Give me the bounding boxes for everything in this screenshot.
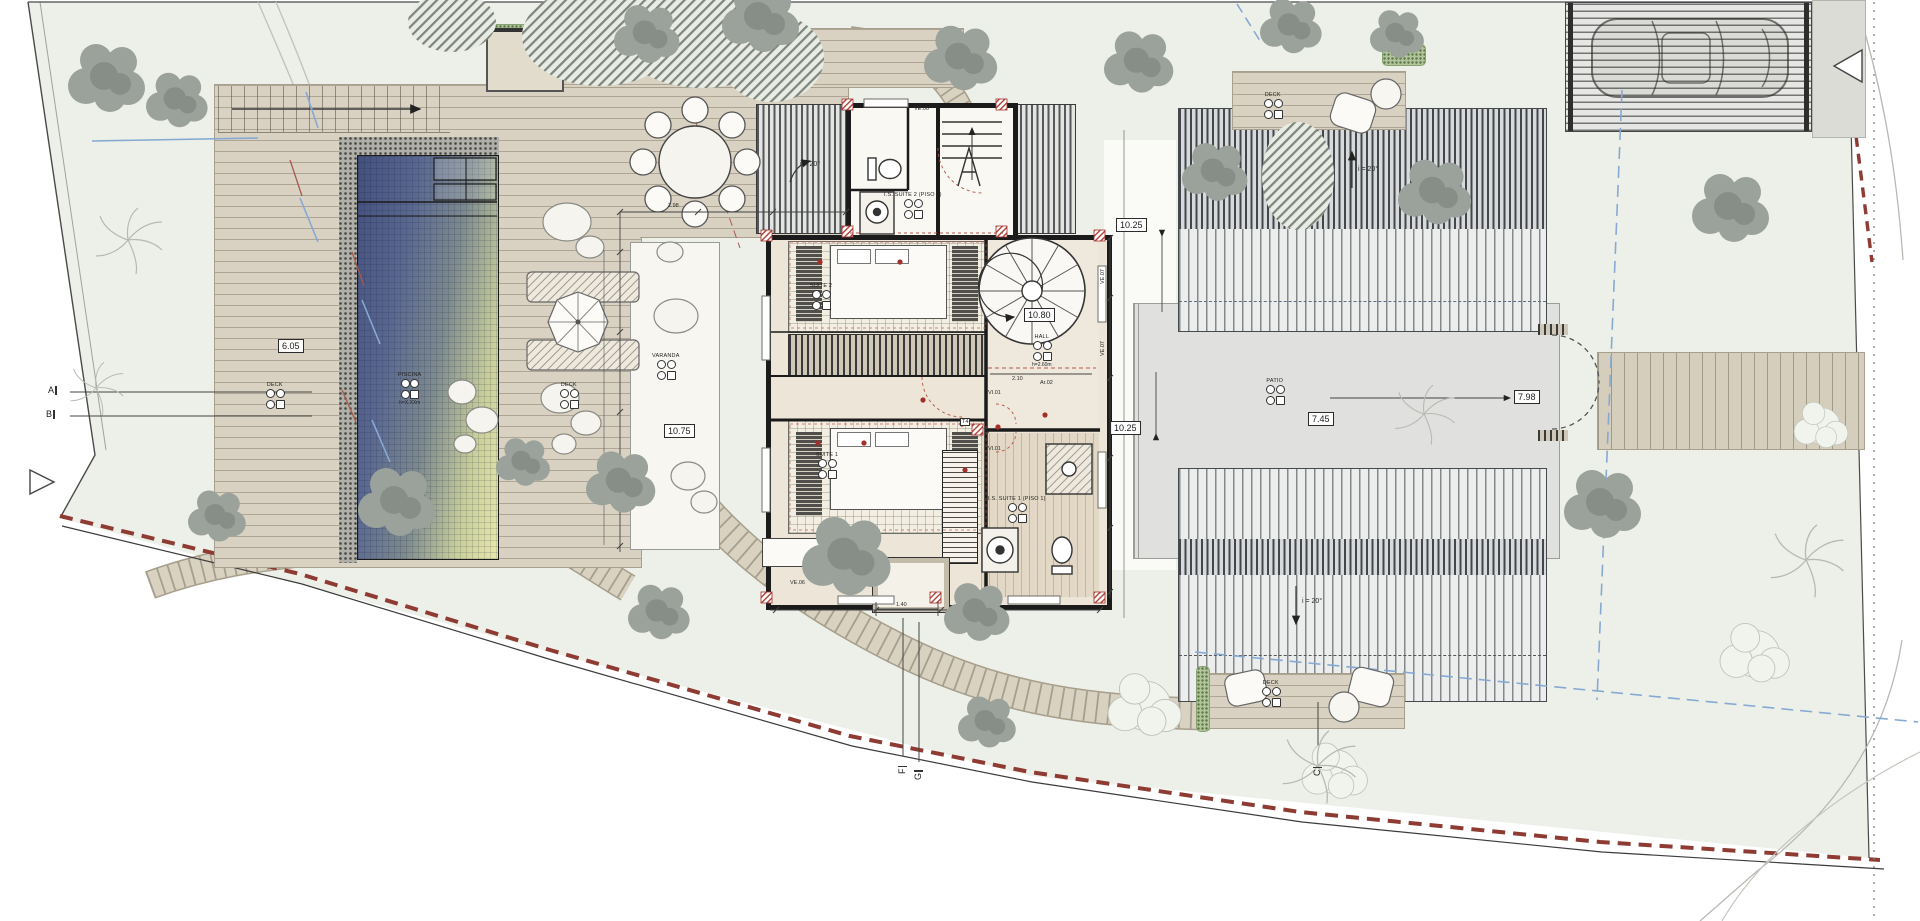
pillow [837,249,871,264]
finish-symbols [1266,385,1284,405]
suite1-label: SUITE 1 [816,452,838,458]
pillow [875,432,909,447]
hedge-top-right [1382,44,1426,66]
window-tag-ve06-b: VE.06 [790,580,805,586]
is-suite2-label: I.S. SUITE 2 (PISO 1) [884,192,942,198]
section-marker-g: G [913,770,923,780]
gate-post-bottom [1538,430,1568,441]
closet-hangers [942,450,978,564]
planting-strip [1196,666,1210,732]
suite2-wardrobe-right [952,246,978,322]
marker-letter: B [46,409,52,419]
house-top-wing [846,103,1018,247]
piscina-label: PISCINA [398,372,421,378]
suite1-bed [830,428,947,510]
section-marker-b: B [46,409,55,419]
deck-bottom-label-cluster: DECK [1262,680,1280,707]
gate-post-top [1538,324,1568,335]
piscina-depth: h=X.XXm [399,400,420,406]
door-tag-vi01-b: VI.01 [988,446,1001,452]
roof-eave-dashed [1179,655,1546,656]
varanda-label: VARANDA [652,353,680,359]
dim-deck-span: 2.98 [668,203,679,209]
suite2-label: SUITE 2 [810,283,832,289]
roof-eave-dashed [1179,301,1546,302]
boundary-dashed-red-right [1854,120,1872,262]
patio-label-cluster: PATIO [1266,378,1284,405]
is-suite1-label: I.S. SUITE 1 (PISO 1) [988,496,1046,502]
finish-symbols [904,199,922,219]
pillow [875,249,909,264]
roof-upper-slope [1179,469,1546,539]
hall-height: h=2.60m [1032,362,1052,368]
top-walk-deck [500,28,964,88]
deck-label: DECK [561,382,577,388]
site-plan-canvas: 6.05 DECK DECK PISCINA h=X.XXm VARANDA 1… [0,0,1920,921]
type-tag-t4: T4 [960,418,970,426]
finish-symbols [1033,341,1051,361]
dim-patio-zone: 7.45 [1308,412,1334,426]
tag-ar02: Ar.02 [1040,380,1053,386]
patio-label: PATIO [1266,378,1283,384]
suite2-closet-band [788,334,989,376]
dim-pool-zone: 6.05 [278,339,304,353]
dim-gate: 7.98 [1514,390,1540,404]
hall-label-cluster: HALL h=2.60m [1032,334,1052,368]
roof-lower-slope [1179,229,1546,331]
entry-porch [873,558,949,612]
deck-label: DECK [1263,680,1279,686]
deck-label-cluster-right: DECK [560,382,578,409]
dim-hall-span: 2.10 [1012,376,1023,382]
dim-roof-top: 10.25 [1116,218,1147,232]
finish-symbols [266,389,284,409]
deck-stairs [218,86,450,133]
finish-symbols [1008,503,1026,523]
roof-ridge [1179,539,1546,575]
roof-slope-top: i = 20° [1358,166,1378,174]
carport [1565,2,1812,132]
is-suite1-label-cluster: I.S. SUITE 1 (PISO 1) [988,496,1046,523]
door-tag-vi01: VI.01 [988,390,1001,396]
roof-slope-left: i = 20° [800,161,820,169]
dim-roof-bottom: 10.25 [1110,421,1141,435]
finish-symbols [1262,687,1280,707]
section-marker-c: C [1312,767,1322,776]
window-tag-ve06: VE.06 [914,106,929,112]
carport-post-right [1804,3,1809,131]
marker-letter: C [1312,770,1322,777]
marker-letter: A [48,385,54,395]
suite2-bed [830,245,947,319]
pool-gravel-left [339,137,357,563]
dim-porch: 1.40 [896,602,907,608]
annex-deck-top [1232,71,1406,130]
annex-roof-top [1178,108,1547,332]
deck-label: DECK [1265,92,1281,98]
entry-walkway [1597,352,1865,450]
section-marker-a: A [48,385,57,395]
deck-top-label-cluster: DECK [1264,92,1282,119]
swimming-pool [357,155,499,560]
finish-symbols [1264,99,1282,119]
finish-symbols [818,459,836,479]
suite2-label-cluster: SUITE 2 [810,283,832,310]
varanda-label-cluster: VARANDA [652,353,680,380]
window-tag-ve07-b: VE.07 [1100,341,1106,356]
finish-symbols [657,360,675,380]
house-roof-slats-left [756,104,852,234]
carport-apron [1812,0,1866,138]
suite1-bench [762,538,852,567]
veranda-floor [630,242,720,550]
deck-label: DECK [267,382,283,388]
carport-post-left [1568,3,1573,131]
deck-label-cluster-left: DECK [266,382,284,409]
roof-slope-bottom: i = 20° [1302,598,1322,606]
piscina-label-cluster: PISCINA h=X.XXm [398,372,421,406]
suite1-label-cluster: SUITE 1 [816,452,838,479]
finish-symbols [401,379,419,399]
pillow [837,432,871,447]
marker-letter: F [897,769,907,775]
window-tag-ve07: VE.07 [1100,269,1106,284]
pool-gravel-top [339,137,499,157]
finish-symbols [812,290,830,310]
hall-label: HALL [1035,334,1050,340]
is-suite2-label-cluster: I.S. SUITE 2 (PISO 1) [884,192,942,219]
section-marker-f: F [897,766,907,774]
pergola-slats [1566,3,1811,131]
pool-tile-grid [358,156,498,559]
marker-letter: G [913,773,923,780]
dim-hall-zone: 10.80 [1024,308,1055,322]
outdoor-shower-structure [486,28,564,92]
finish-symbols [560,389,578,409]
house-roof-slats-right [1008,104,1076,234]
annex-roof-bottom [1178,468,1547,702]
dim-varanda-zone: 10.75 [664,424,695,438]
annex-deck-bottom [1206,673,1405,729]
